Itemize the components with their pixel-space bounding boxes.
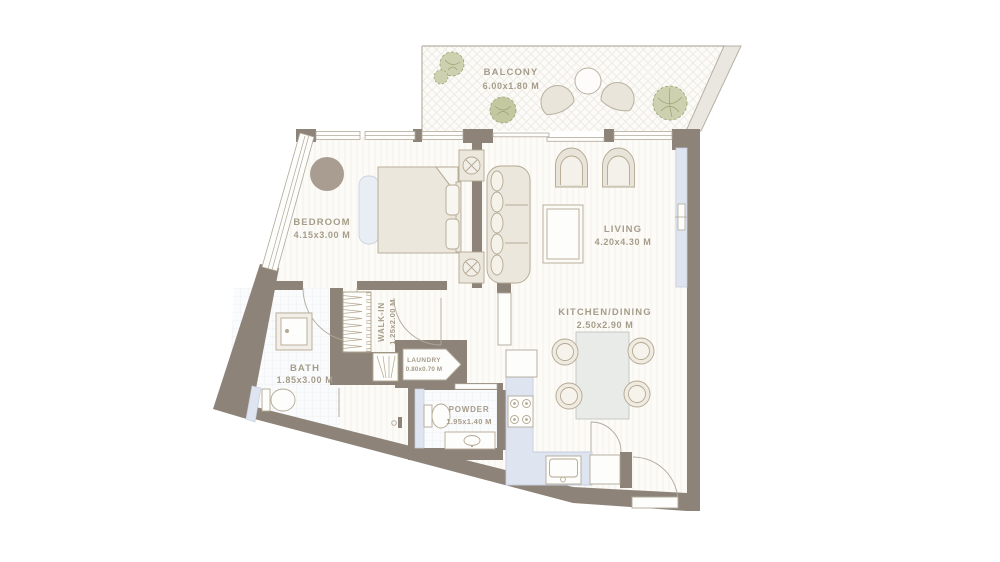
balcony-area: BALCONY 6.00x1.80 M (422, 46, 741, 131)
armchair (556, 148, 588, 187)
laundry-dims: 0.80x0.70 M (406, 366, 443, 373)
toilet-icon (262, 389, 295, 411)
stove-icon (508, 396, 533, 427)
living-label: LIVING (604, 224, 642, 235)
powder-glass-panel (415, 389, 424, 448)
balcony-dims: 6.00x1.80 M (483, 81, 540, 91)
living-dims: 4.20x4.30 M (595, 237, 652, 247)
wardrobe-icon (343, 292, 371, 352)
balcony-round-table (575, 68, 601, 94)
storage-closet (590, 455, 620, 484)
kitchen-sink-icon (546, 456, 581, 484)
kitchen-dining-label: KITCHEN/DINING (558, 307, 652, 318)
dining-table (576, 332, 629, 419)
plant-icon (490, 97, 516, 123)
walk-in-label: WALK-IN (377, 302, 386, 342)
balcony-floor (422, 46, 726, 131)
tall-cabinet (498, 293, 511, 345)
entry-door-leaf (632, 497, 678, 508)
right-wall (687, 129, 700, 511)
floor-plan-drawing: BALCONY 6.00x1.80 M (0, 0, 1000, 562)
bedroom-label: BEDROOM (293, 217, 350, 228)
powder-sliding-door (455, 384, 497, 389)
walk-in-dims: 1.25x2.00 M (388, 299, 397, 345)
powder-label: POWDER (449, 405, 490, 414)
pillow (446, 185, 459, 215)
powder-dims: 1.95x1.40 M (446, 417, 492, 426)
bath-label: BATH (290, 363, 320, 374)
bedside-bench (359, 176, 379, 244)
powder-sink-icon (445, 432, 495, 449)
pillow (446, 219, 459, 249)
lamp-icon (463, 259, 480, 276)
bath-dims: 1.85x3.00 M (277, 375, 334, 385)
balcony-label: BALCONY (484, 67, 539, 78)
round-rug (310, 157, 344, 191)
hanger-rack-icon (373, 353, 398, 381)
bedroom-dims: 4.15x3.00 M (294, 230, 351, 240)
laundry-label: LAUNDRY (407, 357, 441, 364)
sofa-cushions (491, 171, 503, 275)
plant-icon (653, 86, 687, 120)
armchair (603, 148, 635, 187)
floor-plan-page: BALCONY 6.00x1.80 M (0, 0, 1000, 562)
fridge (506, 350, 537, 377)
bath-vanity-icon (276, 313, 312, 350)
lamp-icon (463, 157, 480, 174)
kitchen-dining-dims: 2.50x2.90 M (577, 320, 634, 330)
